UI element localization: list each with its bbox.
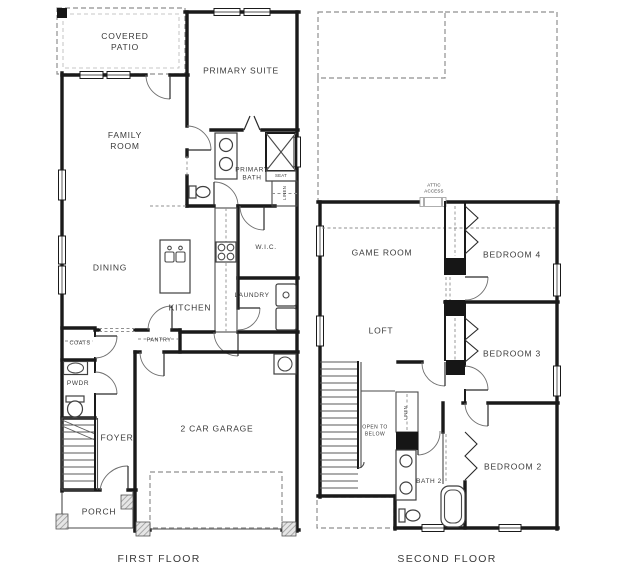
- porch-post: [56, 514, 68, 529]
- room-label-garage: 2 CAR GARAGE: [181, 423, 254, 434]
- bath2-door: [418, 431, 440, 455]
- hall-door: [422, 362, 445, 386]
- window: [294, 137, 301, 167]
- room-label-bedroom-2: BEDROOM 2: [484, 461, 542, 472]
- toilet-icon: [66, 396, 84, 417]
- porch-post: [121, 495, 133, 509]
- room-label-covered-patio: COVERED PATIO: [89, 31, 161, 53]
- room-label-kitchen: KITCHEN: [169, 302, 212, 313]
- bedroom3-closet: [455, 318, 478, 362]
- room-label-foyer: FOYER: [100, 432, 133, 443]
- garage-pillar: [282, 522, 296, 536]
- toilet-icon: [399, 509, 420, 522]
- room-label-bath-2: BATH 2: [415, 478, 443, 486]
- second-floor-plan: [317, 12, 561, 532]
- room-label-wic: W.I.C.: [255, 244, 276, 252]
- room-label-loft: LOFT: [369, 325, 394, 336]
- first-floor-caption: FIRST FLOOR: [117, 553, 200, 567]
- suite-family-wall: [187, 12, 211, 206]
- room-label-primary-suite: PRIMARY SUITE: [203, 65, 279, 76]
- window: [59, 266, 66, 294]
- sink-icon: [64, 362, 88, 375]
- bedroom3-door: [465, 366, 488, 390]
- kitchen-counter: [215, 208, 237, 332]
- window: [554, 366, 561, 396]
- room-label-pwdr: PWDR: [67, 380, 89, 388]
- room-label-seat: SEAT: [275, 173, 287, 179]
- window: [214, 9, 240, 16]
- kitchen-island-icon: [160, 240, 190, 293]
- washer-dryer-icon: [276, 284, 296, 330]
- room-label-dining: DINING: [93, 262, 127, 273]
- bath-wall-block: [396, 432, 418, 450]
- toilet-icon: [189, 186, 210, 198]
- window: [317, 226, 324, 256]
- patio-door: [146, 75, 170, 99]
- window: [107, 72, 130, 79]
- patio-post: [57, 8, 67, 18]
- bedroom4-door: [465, 277, 488, 300]
- stairs-icon: [320, 362, 364, 488]
- room-label-bedroom-3: BEDROOM 3: [483, 348, 541, 359]
- hall-walls: [95, 329, 298, 377]
- room-label-primary-bath: PRIMARY BATH: [232, 167, 272, 184]
- cooktop-icon: [216, 242, 236, 262]
- bathtub-icon: [441, 486, 465, 527]
- window: [59, 236, 66, 264]
- room-label-family-room: FAMILY ROOM: [100, 130, 150, 152]
- bedroom4-closet: [455, 206, 478, 256]
- room-label-attic-access: ATTIC ACCESS: [421, 182, 447, 193]
- window: [422, 525, 444, 532]
- powder-room: [62, 360, 117, 418]
- second-floor-caption: SECOND FLOOR: [397, 553, 496, 567]
- water-heater-icon: [274, 354, 296, 374]
- attic-access-panel: [420, 198, 446, 207]
- roof-outline: [317, 12, 557, 528]
- room-label-pantry: PANTRY: [147, 337, 172, 344]
- window: [59, 170, 66, 200]
- laundry-walls: [238, 278, 298, 332]
- bedroom2-door: [465, 403, 488, 426]
- second-floor-interior-walls: [398, 202, 558, 432]
- room-label-game-room: GAME ROOM: [352, 247, 413, 258]
- room-label-laundry: LAUNDRY: [234, 292, 269, 300]
- wic-walls: [238, 206, 298, 278]
- window: [244, 9, 270, 16]
- floorplan-page: COVERED PATIO PRIMARY SUITE FAMILY ROOM …: [0, 0, 617, 582]
- window: [317, 316, 324, 346]
- room-label-open-to-below: OPEN TO BELOW: [362, 425, 388, 438]
- front-door: [100, 466, 128, 490]
- window: [80, 72, 103, 79]
- garage-door-outline: [136, 472, 296, 536]
- stairs-icon: [62, 418, 98, 490]
- room-label-linen-1: LINEN: [282, 186, 288, 200]
- room-label-coats: COATS: [69, 340, 90, 347]
- garage-pillar: [136, 522, 150, 536]
- floorplan-drawing: [0, 0, 617, 582]
- window: [554, 264, 561, 296]
- room-label-linen-2: LINEN: [403, 406, 409, 420]
- room-label-bedroom-4: BEDROOM 4: [483, 249, 541, 260]
- room-label-porch: PORCH: [82, 506, 117, 517]
- bath2-vanity-sinks: [396, 450, 416, 500]
- window: [499, 525, 521, 532]
